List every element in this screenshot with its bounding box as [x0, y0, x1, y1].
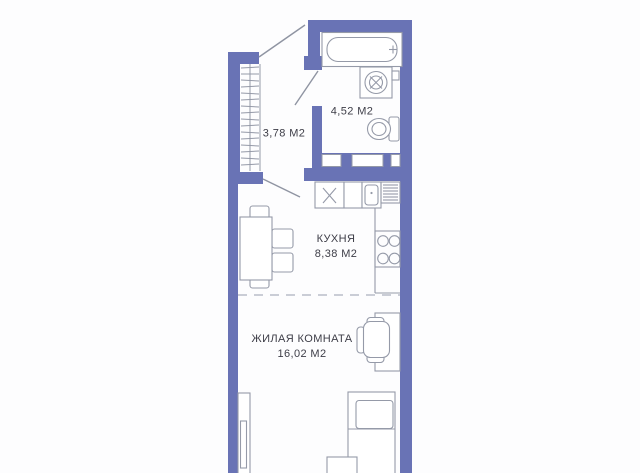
dish-drainer — [381, 182, 400, 203]
chair — [272, 253, 293, 272]
kitchen-door-swing — [263, 179, 300, 197]
kitchen-name: КУХНЯ — [315, 232, 358, 247]
kitchen-area-label: 8,38 М2 — [315, 247, 358, 262]
living-room-label: ЖИЛАЯ КОМНАТА 16,02 М2 — [252, 332, 353, 362]
bedside-bench — [327, 457, 357, 473]
wall-hallway-left — [228, 52, 240, 184]
wall-kitchen-top — [304, 168, 412, 181]
wall-bathroom-top — [308, 20, 412, 32]
bathroom-area-label: 4,52 М2 — [331, 105, 374, 120]
closet-hangers — [241, 64, 260, 171]
wall-left — [228, 172, 238, 473]
living-room-name: ЖИЛАЯ КОМНАТА — [252, 332, 353, 347]
hallway-area-label: 3,78 М2 — [263, 127, 306, 142]
dining-set — [240, 206, 293, 288]
pillow — [356, 401, 393, 429]
wall-bathroom-left-stub — [304, 56, 322, 70]
bathtub — [322, 33, 402, 67]
living-room-area-label: 16,02 М2 — [252, 347, 353, 362]
toilet — [368, 117, 400, 141]
wardrobe — [238, 393, 250, 473]
wall-right — [400, 20, 412, 473]
kitchen-label: КУХНЯ 8,38 М2 — [315, 232, 358, 262]
desk-area — [357, 313, 400, 371]
cabinet — [344, 182, 362, 208]
floor-plan: 3,78 М2 4,52 М2 КУХНЯ 8,38 М2 ЖИЛАЯ КОМН… — [0, 0, 640, 473]
dining-table — [240, 217, 272, 280]
kitchen-counter-right-run — [375, 208, 400, 293]
bathroom-door-swing — [295, 71, 318, 105]
bed — [327, 392, 395, 473]
entrance-door-swing — [259, 25, 305, 57]
office-chair — [357, 318, 390, 363]
kitchen-sink — [362, 182, 381, 208]
stove — [375, 231, 400, 267]
wall-hallway-top-cap — [228, 52, 259, 64]
kitchen-counter-top-row — [315, 182, 400, 208]
wall-bathroom-left-upper — [308, 20, 320, 58]
chair — [272, 229, 293, 248]
washing-machine — [360, 67, 399, 98]
